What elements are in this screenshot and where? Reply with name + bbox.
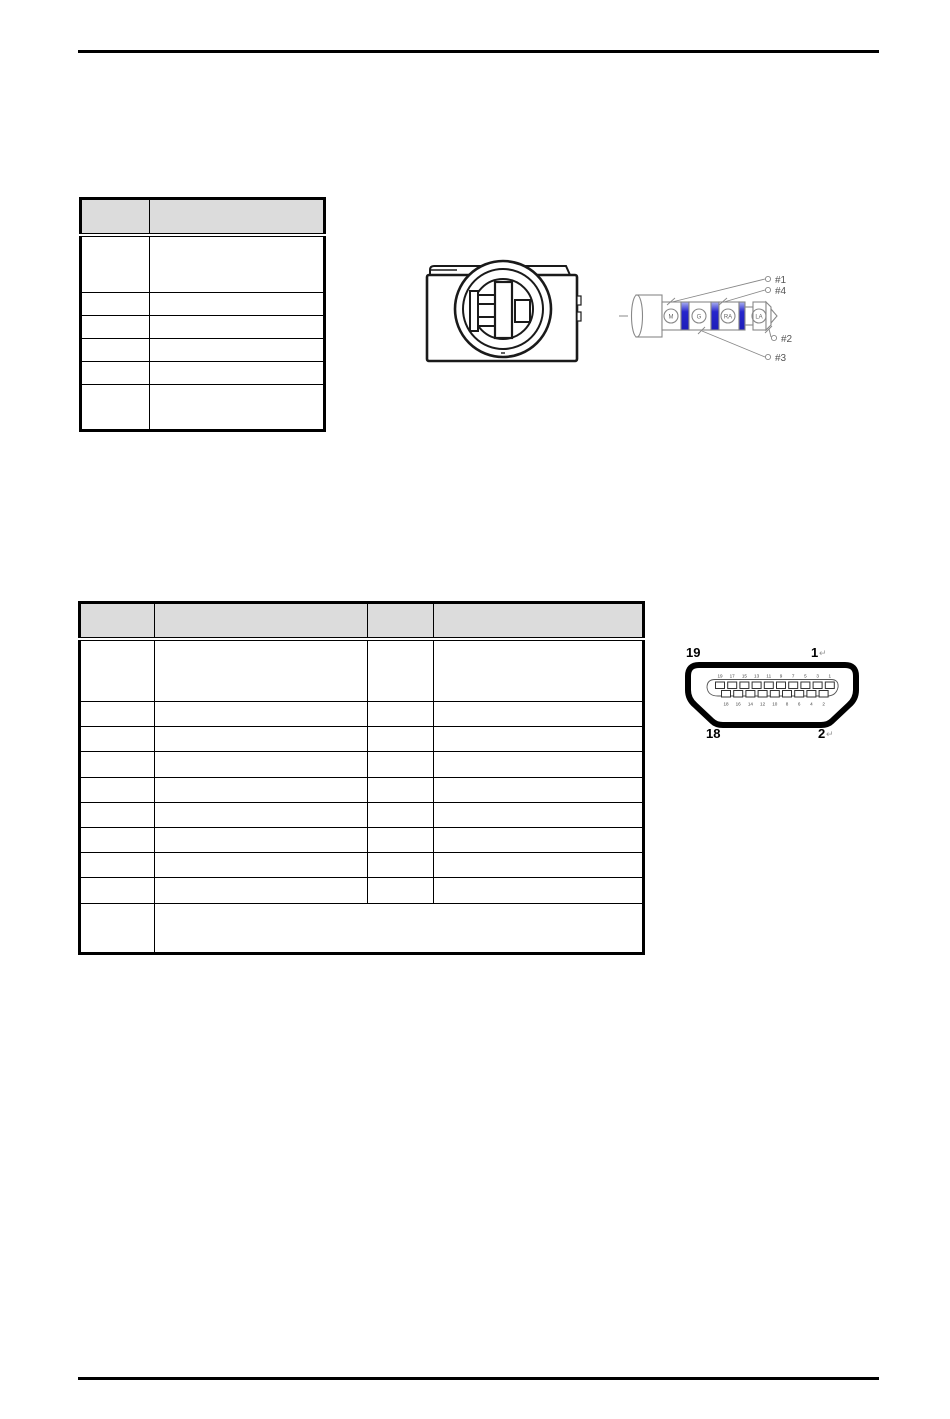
table-cell (155, 878, 368, 903)
table-row (81, 235, 325, 293)
hdmi-pin (813, 682, 822, 689)
table-row (81, 361, 325, 384)
hdmi-pin-number: 17 (730, 674, 736, 679)
hdmi-pin-number: 7 (792, 674, 795, 679)
table-cell (81, 361, 150, 384)
table-cell (434, 802, 644, 827)
table-header-row (80, 603, 644, 639)
callout-label-2: #2 (781, 334, 793, 345)
hdmi-pin (764, 682, 773, 689)
table-cell (434, 639, 644, 702)
table-header-row (81, 199, 325, 235)
hdmi-pin (789, 682, 798, 689)
table-row (80, 878, 644, 903)
segment-letter-mic: M (669, 315, 674, 321)
hdmi-pin-number: 12 (760, 702, 766, 707)
table-cell (368, 827, 434, 852)
hdmi-pin-number: 14 (748, 702, 754, 707)
corner-label-19: 19 (686, 645, 700, 660)
table-row (80, 752, 644, 777)
table-cell (368, 777, 434, 802)
table-cell (80, 777, 155, 802)
table-cell (368, 878, 434, 903)
table-row (80, 802, 644, 827)
hdmi-pin-number: 5 (804, 674, 807, 679)
table-cell (434, 853, 644, 878)
table-header-cell (150, 199, 325, 235)
table-cell (80, 903, 155, 954)
hdmi-pin-number: 3 (816, 674, 819, 679)
table-cell (155, 702, 368, 727)
document-page: M G RA LA #1 #4 #2 #3 (0, 0, 950, 1419)
hdmi-pin (801, 682, 810, 689)
hdmi-pin-table-body (80, 603, 644, 954)
table-row (80, 639, 644, 702)
table-header-cell (434, 603, 644, 639)
table-cell (150, 292, 325, 315)
header-rule (78, 50, 879, 53)
hdmi-pin (777, 682, 786, 689)
hdmi-pin-number: 15 (742, 674, 748, 679)
table-cell (434, 827, 644, 852)
hdmi-pin-number: 1 (829, 674, 832, 679)
table-cell (80, 853, 155, 878)
table-cell (155, 752, 368, 777)
hdmi-pin (734, 691, 743, 698)
table-cell (155, 639, 368, 702)
table-cell (155, 827, 368, 852)
table-header-cell (81, 199, 150, 235)
table-cell (150, 384, 325, 430)
table-row (80, 702, 644, 727)
corner-label-1: 1 (811, 645, 818, 660)
table-row (80, 777, 644, 802)
table-row (80, 903, 644, 954)
table-cell (81, 315, 150, 338)
footer-rule (78, 1377, 879, 1380)
corner-label-2: 2 (818, 726, 825, 741)
return-mark-icon: ↵ (826, 729, 834, 739)
table-cell (81, 338, 150, 361)
table-cell (434, 777, 644, 802)
hdmi-pin-number: 2 (822, 702, 825, 707)
table-row (80, 853, 644, 878)
table-cell (80, 639, 155, 702)
hdmi-pin (746, 691, 755, 698)
segment-letter-left: LA (755, 315, 762, 321)
hdmi-connector-diagram: 19 1 ↵ 18 2 ↵ 19171513119753118161412108… (678, 638, 870, 742)
hdmi-pin-number: 8 (786, 702, 789, 707)
table-cell (368, 727, 434, 752)
segment-letter-gnd: G (697, 315, 702, 321)
hdmi-pin (740, 682, 749, 689)
table-cell (155, 802, 368, 827)
table-cell (81, 235, 150, 293)
audio-plug-pinout-diagram: M G RA LA #1 #4 #2 #3 (618, 260, 813, 370)
hdmi-pin-number: 4 (810, 702, 813, 707)
table-cell (80, 827, 155, 852)
table-cell (434, 727, 644, 752)
table-cell (150, 338, 325, 361)
corner-label-18: 18 (706, 726, 720, 741)
callout-label-4: #4 (775, 286, 787, 297)
table-row (81, 292, 325, 315)
table-cell (155, 903, 644, 954)
table-cell (155, 853, 368, 878)
table-row (80, 827, 644, 852)
hdmi-pin-number: 16 (736, 702, 742, 707)
hdmi-pin-number: 9 (780, 674, 783, 679)
hdmi-pin (783, 691, 792, 698)
table-cell (368, 802, 434, 827)
segment-letter-right: RA (724, 315, 732, 321)
hdmi-pin-number: 19 (717, 674, 723, 679)
table-cell (368, 853, 434, 878)
table-cell (368, 702, 434, 727)
table-cell (434, 878, 644, 903)
table-cell (81, 292, 150, 315)
audio-jack-pin-table (79, 197, 326, 432)
table-cell (150, 361, 325, 384)
callout-label-3: #3 (775, 353, 787, 364)
hdmi-pin-number: 6 (798, 702, 801, 707)
hdmi-pin-number: 13 (754, 674, 760, 679)
hdmi-pin (819, 691, 828, 698)
hdmi-pin (722, 691, 731, 698)
hdmi-pin-number: 11 (766, 674, 771, 679)
table-cell (368, 639, 434, 702)
hdmi-pin (758, 691, 767, 698)
callout-labels: #1 #4 #2 #3 (775, 275, 793, 364)
hdmi-pin (807, 691, 816, 698)
table-cell (155, 777, 368, 802)
return-mark-icon: ↵ (819, 648, 827, 658)
audio-jack-front-view-diagram (423, 256, 585, 368)
hdmi-pin-table (78, 601, 645, 955)
table-cell (434, 752, 644, 777)
table-row (81, 338, 325, 361)
table-cell (80, 878, 155, 903)
audio-jack-pin-table-body (81, 199, 325, 431)
hdmi-pin-number: 18 (723, 702, 729, 707)
hdmi-pin (728, 682, 737, 689)
table-row (81, 315, 325, 338)
table-cell (368, 752, 434, 777)
table-header-cell (155, 603, 368, 639)
table-cell (155, 727, 368, 752)
table-cell (80, 727, 155, 752)
table-cell (150, 235, 325, 293)
table-cell (80, 702, 155, 727)
hdmi-pin (770, 691, 779, 698)
table-row (81, 384, 325, 430)
table-cell (150, 315, 325, 338)
callout-label-1: #1 (775, 275, 787, 286)
hdmi-pin (825, 682, 834, 689)
table-header-cell (80, 603, 155, 639)
table-cell (80, 802, 155, 827)
table-cell (80, 752, 155, 777)
table-row (80, 727, 644, 752)
hdmi-pin (716, 682, 725, 689)
hdmi-pin-number: 10 (772, 702, 778, 707)
table-header-cell (368, 603, 434, 639)
hdmi-pin (795, 691, 804, 698)
hdmi-pin (752, 682, 761, 689)
table-cell (81, 384, 150, 430)
table-cell (434, 702, 644, 727)
